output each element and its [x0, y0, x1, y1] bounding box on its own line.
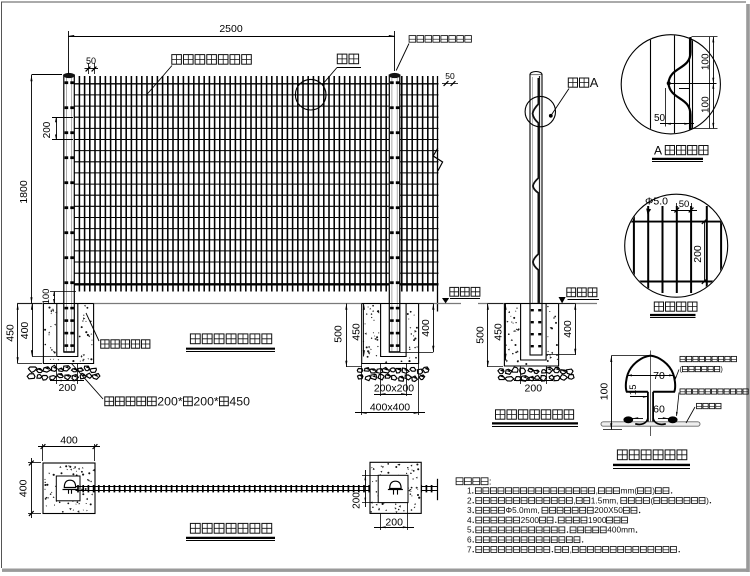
- svg-text:200*: 200*: [157, 395, 183, 409]
- svg-text:450: 450: [492, 323, 504, 341]
- svg-text:): ): [652, 486, 655, 496]
- svg-text:200: 200: [42, 121, 53, 138]
- svg-text:,: ,: [573, 495, 575, 505]
- svg-text:400x400: 400x400: [370, 402, 410, 414]
- svg-text:200X50: 200X50: [594, 505, 623, 515]
- svg-text:400mm: 400mm: [607, 525, 635, 535]
- svg-text:1: 1: [467, 486, 472, 496]
- svg-text:500: 500: [332, 325, 344, 343]
- svg-text:mm(: mm(: [621, 486, 638, 496]
- svg-text:200: 200: [59, 382, 77, 394]
- svg-text::: :: [489, 477, 492, 488]
- svg-text:15: 15: [628, 385, 639, 396]
- svg-text:A: A: [590, 75, 599, 90]
- svg-text:,: ,: [570, 544, 572, 554]
- svg-text:60: 60: [653, 404, 665, 416]
- svg-text:450: 450: [350, 323, 362, 341]
- svg-text:6: 6: [467, 535, 472, 545]
- svg-text:200: 200: [692, 245, 704, 263]
- svg-text:Φ5.0mm,: Φ5.0mm,: [506, 505, 540, 515]
- svg-text:400: 400: [562, 320, 574, 338]
- svg-text:200: 200: [525, 383, 543, 395]
- svg-text:A: A: [654, 144, 662, 158]
- svg-text:2500: 2500: [521, 515, 540, 525]
- svg-text:1800: 1800: [18, 180, 30, 204]
- svg-text:400: 400: [19, 322, 31, 340]
- svg-text:100: 100: [700, 96, 711, 113]
- svg-text:100: 100: [598, 383, 610, 401]
- svg-text:200: 200: [385, 516, 403, 528]
- svg-text:50: 50: [679, 199, 690, 210]
- svg-text:450: 450: [4, 324, 16, 342]
- svg-text:50: 50: [86, 56, 96, 66]
- svg-text:200: 200: [352, 492, 363, 509]
- svg-text:100: 100: [41, 289, 52, 305]
- svg-text:500: 500: [474, 326, 486, 344]
- svg-text:450: 450: [229, 395, 250, 409]
- svg-text:3: 3: [467, 505, 472, 515]
- svg-text:400: 400: [17, 479, 29, 497]
- svg-text:(: (: [651, 495, 654, 505]
- svg-text:7: 7: [467, 544, 472, 554]
- svg-text:400: 400: [420, 319, 432, 337]
- svg-text:400: 400: [60, 435, 78, 447]
- svg-text:): ): [706, 495, 709, 505]
- svg-text:1.5mm,: 1.5mm,: [591, 495, 619, 505]
- svg-text:Φ5.0: Φ5.0: [645, 196, 668, 208]
- svg-text:70: 70: [653, 370, 665, 382]
- svg-text:100: 100: [700, 53, 711, 70]
- svg-text:5: 5: [467, 525, 472, 535]
- svg-text:200*: 200*: [193, 395, 219, 409]
- svg-text:): ): [720, 365, 722, 374]
- svg-text:2500: 2500: [219, 23, 243, 35]
- svg-text:4: 4: [467, 515, 472, 525]
- svg-text:,: ,: [596, 486, 598, 496]
- svg-text:200x200: 200x200: [374, 383, 414, 395]
- svg-text:2: 2: [467, 495, 472, 505]
- svg-text:50: 50: [445, 71, 455, 81]
- svg-text:1900: 1900: [588, 515, 607, 525]
- svg-text:50: 50: [654, 113, 666, 124]
